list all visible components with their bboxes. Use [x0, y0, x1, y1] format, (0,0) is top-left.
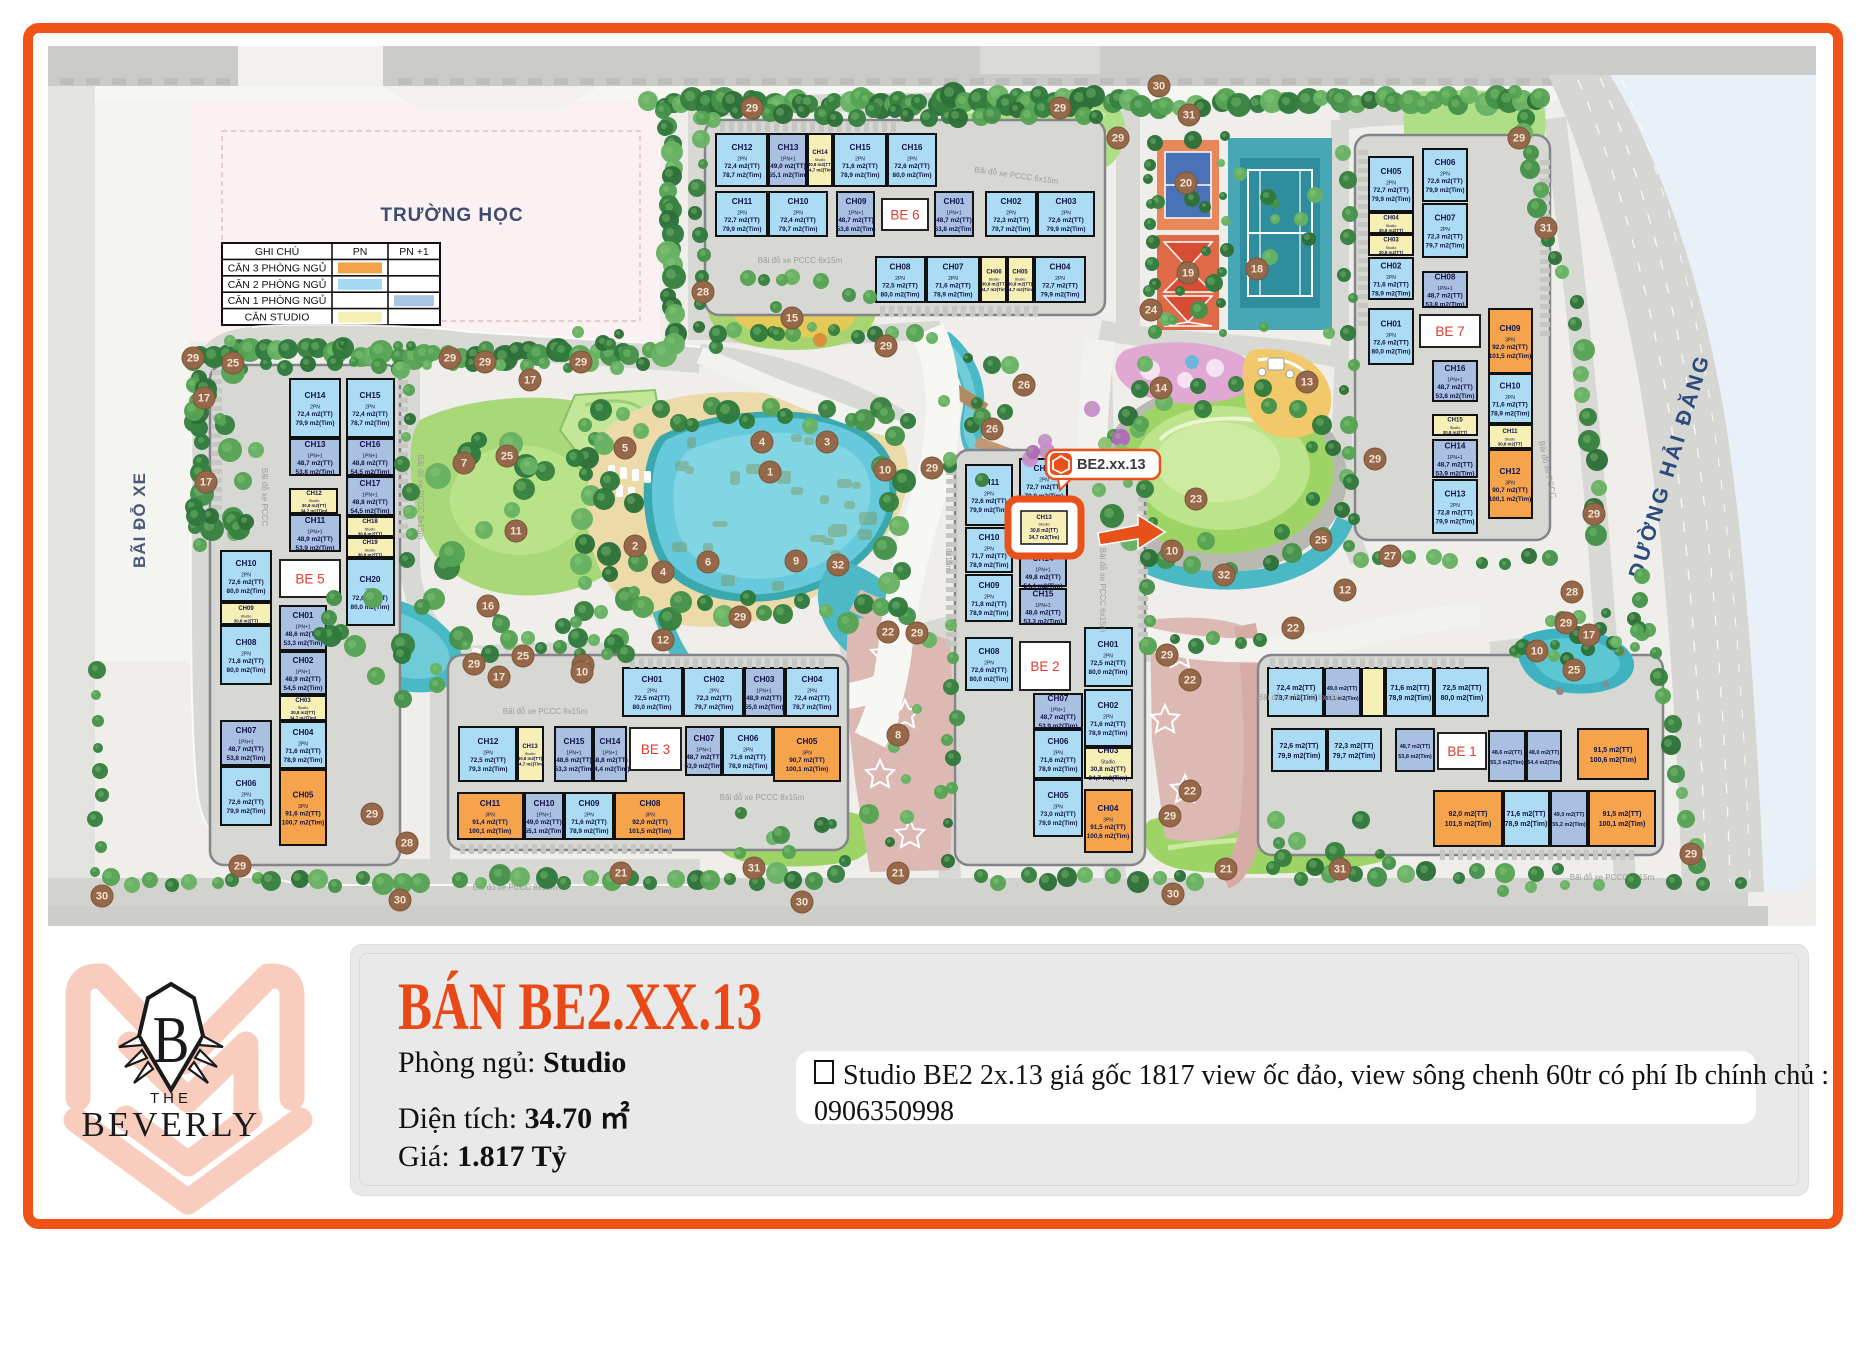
svg-text:CH11: CH11 [732, 197, 753, 206]
svg-text:78,9 m2(Tim): 78,9 m2(Tim) [570, 828, 609, 835]
svg-text:12: 12 [657, 635, 669, 647]
svg-text:28: 28 [401, 838, 413, 850]
svg-text:2PN: 2PN [709, 689, 719, 695]
svg-text:34,7 m2(Tim): 34,7 m2(Tim) [807, 168, 834, 173]
svg-text:CH06: CH06 [1435, 158, 1456, 167]
svg-text:2PN: 2PN [1061, 211, 1071, 217]
svg-text:CH16: CH16 [360, 440, 381, 449]
svg-text:78,9 m2(Tim): 78,9 m2(Tim) [934, 291, 973, 298]
svg-text:78,9 m2(Tim): 78,9 m2(Tim) [1372, 290, 1411, 297]
svg-text:17: 17 [1583, 630, 1595, 642]
svg-text:71,6 m2(TT): 71,6 m2(TT) [1391, 685, 1430, 692]
svg-text:2PN: 2PN [241, 573, 251, 579]
svg-text:1PN+1: 1PN+1 [1437, 286, 1453, 292]
svg-text:29: 29 [1369, 454, 1381, 466]
svg-text:72,6 m2(TT): 72,6 m2(TT) [971, 498, 1007, 505]
svg-text:CH07: CH07 [236, 726, 257, 735]
svg-text:71,6 m2(TT): 71,6 m2(TT) [842, 163, 878, 170]
svg-text:80,0 m2(Tim): 80,0 m2(Tim) [227, 667, 266, 674]
svg-text:90,7 m2(TT): 90,7 m2(TT) [789, 757, 825, 764]
svg-text:92,0 m2(TT): 92,0 m2(TT) [632, 819, 668, 826]
svg-text:48,7 m2(TT): 48,7 m2(TT) [1427, 293, 1463, 300]
svg-text:2PN: 2PN [948, 276, 958, 282]
svg-text:CH06: CH06 [986, 269, 1002, 275]
svg-text:CH02: CH02 [1098, 701, 1119, 710]
svg-text:BE 7: BE 7 [1435, 324, 1464, 339]
svg-text:1PN+1: 1PN+1 [536, 813, 552, 819]
svg-text:29: 29 [911, 628, 923, 640]
svg-text:CH05: CH05 [293, 791, 314, 800]
svg-text:53,8 m2(Tim): 53,8 m2(Tim) [296, 469, 335, 476]
svg-text:49,0 m2(TT): 49,0 m2(TT) [1554, 812, 1585, 818]
svg-text:72,6 m2(TT): 72,6 m2(TT) [228, 579, 264, 586]
svg-text:CH12: CH12 [732, 143, 753, 152]
svg-text:2PN: 2PN [1386, 275, 1396, 281]
svg-text:6: 6 [705, 557, 711, 569]
svg-text:18: 18 [1251, 264, 1263, 276]
svg-text:91,5 m2(TT): 91,5 m2(TT) [1090, 824, 1126, 831]
svg-text:CH11: CH11 [305, 516, 326, 525]
svg-text:55,1 m2(Tim): 55,1 m2(Tim) [525, 828, 564, 835]
svg-text:27: 27 [1384, 551, 1396, 563]
svg-text:14: 14 [1155, 383, 1168, 395]
svg-text:72,6 m2(TT): 72,6 m2(TT) [1280, 743, 1319, 750]
svg-text:BE 2: BE 2 [1030, 659, 1059, 674]
svg-text:71,6 m2(TT): 71,6 m2(TT) [571, 819, 607, 826]
svg-text:30,8 m2(TT): 30,8 m2(TT) [982, 282, 1007, 287]
svg-text:53,8 m2(Tim): 53,8 m2(Tim) [837, 226, 876, 233]
svg-text:30,8 m2(TT): 30,8 m2(TT) [1008, 282, 1033, 287]
svg-text:48,9 m2(TT): 48,9 m2(TT) [297, 536, 333, 543]
svg-text:CH01: CH01 [293, 611, 314, 620]
svg-text:21: 21 [892, 868, 904, 880]
svg-text:BE 5: BE 5 [295, 572, 324, 587]
svg-text:CH01: CH01 [944, 197, 965, 206]
svg-text:Bãi đỗ xe PCCC 8x15m: Bãi đỗ xe PCCC 8x15m [1258, 693, 1343, 702]
svg-text:30,8 m2(TT): 30,8 m2(TT) [1498, 441, 1523, 446]
svg-text:BÃI ĐỖ XE: BÃI ĐỖ XE [129, 472, 149, 568]
svg-text:21: 21 [615, 868, 627, 880]
svg-text:53,8 m2(Tim): 53,8 m2(Tim) [1436, 393, 1475, 400]
svg-text:30,8 m2(TT): 30,8 m2(TT) [1443, 430, 1468, 435]
svg-text:101,5 m2(Tim): 101,5 m2(Tim) [1445, 821, 1492, 828]
svg-text:48,8 m2(TT): 48,8 m2(TT) [352, 460, 388, 467]
svg-text:79,9 m2(Tim): 79,9 m2(Tim) [1436, 518, 1475, 525]
svg-text:101,5 m2(Tim): 101,5 m2(Tim) [1489, 353, 1532, 360]
svg-text:1PN+1: 1PN+1 [307, 530, 323, 536]
svg-text:32: 32 [1218, 570, 1230, 582]
svg-text:CH04: CH04 [293, 728, 314, 737]
svg-text:1PN+1: 1PN+1 [780, 157, 796, 163]
svg-text:CH15: CH15 [564, 737, 585, 746]
svg-text:79,7 m2(Tim): 79,7 m2(Tim) [1333, 753, 1376, 760]
svg-text:78,9 m2(Tim): 78,9 m2(Tim) [1039, 766, 1078, 773]
svg-text:CH05: CH05 [1381, 167, 1402, 176]
svg-text:80,0 m2(Tim): 80,0 m2(Tim) [1089, 669, 1128, 676]
svg-text:30,8 m2(TT): 30,8 m2(TT) [518, 756, 543, 761]
svg-text:54,5 m2(Tim): 54,5 m2(Tim) [351, 508, 390, 515]
svg-text:CH10: CH10 [534, 799, 555, 808]
svg-text:100,1 m2(Tim): 100,1 m2(Tim) [1489, 496, 1532, 503]
svg-text:55,2 m2(Tim): 55,2 m2(Tim) [1552, 822, 1586, 828]
svg-text:CH06: CH06 [738, 734, 759, 743]
svg-text:31: 31 [748, 863, 760, 875]
svg-text:54,5 m2(Tim): 54,5 m2(Tim) [351, 469, 390, 476]
svg-text:71,6 m2(TT): 71,6 m2(TT) [1507, 811, 1546, 818]
svg-text:2PN: 2PN [1039, 478, 1049, 484]
svg-text:34,7 m2(Tim): 34,7 m2(Tim) [1007, 287, 1034, 292]
svg-text:34,7 m2(Tim): 34,7 m2(Tim) [301, 509, 328, 514]
svg-text:30,8 m2(TT): 30,8 m2(TT) [234, 618, 259, 623]
svg-text:71,6 m2(TT): 71,6 m2(TT) [1040, 757, 1076, 764]
svg-text:29: 29 [734, 612, 746, 624]
svg-text:4: 4 [660, 567, 667, 579]
svg-text:72,6 m2(TT): 72,6 m2(TT) [1048, 217, 1084, 224]
svg-text:72,3 m2(TT): 72,3 m2(TT) [1335, 743, 1374, 750]
svg-text:80,0 m2(Tim): 80,0 m2(Tim) [1441, 695, 1484, 702]
svg-text:PN: PN [353, 246, 368, 258]
svg-text:78,9 m2(Tim): 78,9 m2(Tim) [970, 610, 1009, 617]
svg-text:25: 25 [517, 651, 529, 663]
svg-text:78,9 m2(Tim): 78,9 m2(Tim) [1389, 695, 1432, 702]
svg-text:80,0 m2(Tim): 80,0 m2(Tim) [881, 291, 920, 298]
svg-text:CH10: CH10 [788, 197, 809, 206]
svg-text:CĂN 3 PHÒNG NGỦ: CĂN 3 PHÒNG NGỦ [228, 261, 327, 274]
svg-text:CH13: CH13 [522, 744, 538, 750]
svg-text:10: 10 [879, 465, 891, 477]
svg-text:78,7 m2(Tim): 78,7 m2(Tim) [723, 172, 762, 179]
svg-text:TRƯỜNG HỌC: TRƯỜNG HỌC [380, 204, 523, 226]
svg-text:100,6 m2(Tim): 100,6 m2(Tim) [1087, 833, 1130, 840]
svg-text:CH03: CH03 [754, 675, 775, 684]
svg-text:48,7 m2(TT): 48,7 m2(TT) [1400, 744, 1431, 750]
svg-text:79,9 m2(Tim): 79,9 m2(Tim) [1426, 187, 1465, 194]
svg-text:100,1 m2(Tim): 100,1 m2(Tim) [469, 828, 512, 835]
svg-text:30,8 m2(TT): 30,8 m2(TT) [358, 531, 383, 536]
svg-text:48,8 m2(TT): 48,8 m2(TT) [352, 499, 388, 506]
svg-text:101,5 m2(Tim): 101,5 m2(Tim) [629, 828, 672, 835]
svg-text:71,8 m2(TT): 71,8 m2(TT) [228, 658, 264, 665]
svg-text:29: 29 [187, 353, 199, 365]
svg-text:48,9 m2(TT): 48,9 m2(TT) [746, 695, 782, 702]
svg-text:91,5 m2(TT): 91,5 m2(TT) [1603, 811, 1642, 818]
svg-text:8x15m: 8x15m [944, 548, 953, 572]
svg-text:2PN: 2PN [737, 157, 747, 163]
svg-text:55,0 m2(Tim): 55,0 m2(Tim) [745, 704, 784, 711]
svg-text:92,0 m2(TT): 92,0 m2(TT) [1492, 344, 1528, 351]
svg-text:79,9 m2(Tim): 79,9 m2(Tim) [1372, 196, 1411, 203]
svg-text:79,9 m2(Tim): 79,9 m2(Tim) [1039, 820, 1078, 827]
svg-text:53,8 m2(Tim): 53,8 m2(Tim) [935, 226, 974, 233]
svg-text:12: 12 [1339, 585, 1351, 597]
svg-text:1PN+1: 1PN+1 [1050, 708, 1066, 714]
svg-text:CH19: CH19 [362, 540, 378, 546]
svg-text:2PN: 2PN [1386, 333, 1396, 339]
svg-text:29: 29 [234, 861, 246, 873]
svg-text:78,9 m2(Tim): 78,9 m2(Tim) [729, 763, 768, 770]
svg-text:Bãi đỗ xe PCCC: Bãi đỗ xe PCCC [260, 468, 269, 526]
svg-text:34,7 m2(Tim): 34,7 m2(Tim) [981, 287, 1008, 292]
svg-text:53,3 m2(Tim): 53,3 m2(Tim) [284, 640, 323, 647]
svg-text:3PN: 3PN [1103, 818, 1113, 824]
svg-text:55,1 m2(Tim): 55,1 m2(Tim) [769, 172, 808, 179]
svg-text:53,3 m2(Tim): 53,3 m2(Tim) [555, 766, 594, 773]
svg-text:2: 2 [632, 541, 638, 553]
svg-text:GHI CHÚ: GHI CHÚ [255, 245, 299, 258]
svg-text:72,4 m2(TT): 72,4 m2(TT) [297, 411, 333, 418]
svg-text:CĂN 1 PHÒNG NGỦ: CĂN 1 PHÒNG NGỦ [228, 294, 327, 307]
svg-text:71,6 m2(TT): 71,6 m2(TT) [935, 283, 971, 290]
svg-text:26: 26 [1018, 380, 1030, 392]
svg-text:10: 10 [576, 667, 588, 679]
svg-text:79,9 m2(Tim): 79,9 m2(Tim) [296, 420, 335, 427]
svg-text:13: 13 [1301, 377, 1313, 389]
svg-text:79,9 m2(Tim): 79,9 m2(Tim) [1278, 753, 1321, 760]
svg-text:CH14: CH14 [600, 737, 621, 746]
svg-text:CH08: CH08 [236, 638, 257, 647]
svg-text:8: 8 [895, 730, 901, 742]
svg-text:17: 17 [493, 672, 505, 684]
svg-text:22: 22 [1184, 675, 1196, 687]
svg-text:100,6 m2(Tim): 100,6 m2(Tim) [1590, 757, 1637, 764]
svg-text:CH03: CH03 [1056, 197, 1077, 206]
svg-text:72,4 m2(TT): 72,4 m2(TT) [352, 411, 388, 418]
svg-text:34,7 m2(Tim): 34,7 m2(Tim) [517, 762, 544, 767]
svg-text:30,8 m2(TT): 30,8 m2(TT) [1030, 528, 1058, 534]
svg-text:3PN: 3PN [1505, 481, 1515, 487]
svg-text:25: 25 [227, 358, 239, 370]
svg-text:20: 20 [1180, 178, 1192, 190]
svg-text:CH08: CH08 [890, 263, 911, 272]
svg-text:CH06: CH06 [1048, 737, 1069, 746]
svg-text:78,7 m2(Tim): 78,7 m2(Tim) [793, 704, 832, 711]
svg-text:29: 29 [1685, 849, 1697, 861]
svg-text:32: 32 [832, 560, 844, 572]
svg-text:CH10: CH10 [979, 533, 1000, 542]
svg-text:30: 30 [796, 897, 808, 909]
svg-text:CH13: CH13 [305, 440, 326, 449]
svg-text:30: 30 [1167, 889, 1179, 901]
svg-text:54,4 m2(Tim): 54,4 m2(Tim) [1527, 760, 1561, 766]
svg-text:1PN+1: 1PN+1 [1447, 378, 1463, 384]
svg-text:CH15: CH15 [1447, 418, 1463, 424]
svg-text:CH03: CH03 [295, 698, 311, 704]
svg-text:CH10: CH10 [236, 559, 257, 568]
svg-text:3PN: 3PN [802, 751, 812, 757]
svg-text:CH13: CH13 [1445, 490, 1466, 499]
svg-text:53,9 m2(Tim): 53,9 m2(Tim) [1436, 470, 1475, 477]
svg-text:31: 31 [1183, 110, 1195, 122]
svg-text:49,0 m2(TT): 49,0 m2(TT) [526, 819, 562, 826]
svg-text:2PN: 2PN [241, 793, 251, 799]
svg-text:CĂN STUDIO: CĂN STUDIO [245, 311, 310, 324]
svg-text:CH16: CH16 [902, 143, 923, 152]
svg-text:1PN+1: 1PN+1 [848, 211, 864, 217]
svg-text:2PN: 2PN [241, 652, 251, 658]
svg-text:29: 29 [746, 103, 758, 115]
svg-text:79,7 m2(Tim): 79,7 m2(Tim) [779, 226, 818, 233]
svg-text:30: 30 [96, 891, 108, 903]
svg-text:PN +1: PN +1 [399, 246, 429, 258]
svg-text:31: 31 [1540, 223, 1552, 235]
svg-text:2PN: 2PN [1053, 751, 1063, 757]
svg-text:2PN: 2PN [743, 748, 753, 754]
svg-text:48,8 m2(TT): 48,8 m2(TT) [592, 757, 628, 764]
svg-text:CH08: CH08 [979, 647, 1000, 656]
svg-text:CH08: CH08 [1435, 273, 1456, 282]
svg-text:26: 26 [986, 424, 998, 436]
svg-text:1PN+1: 1PN+1 [566, 751, 582, 757]
svg-text:29: 29 [1054, 103, 1066, 115]
svg-text:2PN: 2PN [647, 689, 657, 695]
svg-text:2PN: 2PN [1450, 503, 1460, 509]
svg-text:48,6 m2(TT): 48,6 m2(TT) [1492, 750, 1523, 756]
svg-text:79,9 m2(Tim): 79,9 m2(Tim) [1047, 226, 1086, 233]
svg-text:53,8 m2(Tim): 53,8 m2(Tim) [1426, 301, 1465, 308]
svg-text:10: 10 [1166, 546, 1178, 558]
svg-text:79,9 m2(Tim): 79,9 m2(Tim) [723, 226, 762, 233]
svg-text:1PN+1: 1PN+1 [756, 689, 772, 695]
svg-text:78,9 m2(Tim): 78,9 m2(Tim) [841, 172, 880, 179]
svg-text:CH04: CH04 [1050, 263, 1071, 272]
svg-text:72,6 m2(TT): 72,6 m2(TT) [1373, 340, 1409, 347]
svg-text:53,9 m2(Tim): 53,9 m2(Tim) [685, 763, 724, 770]
svg-text:B: B [153, 1003, 190, 1077]
svg-text:CH10: CH10 [1500, 382, 1521, 391]
svg-text:CH20: CH20 [360, 575, 381, 584]
svg-text:2PN: 2PN [298, 742, 308, 748]
svg-text:CH18: CH18 [362, 519, 378, 525]
svg-text:25: 25 [1568, 665, 1580, 677]
svg-text:2PN: 2PN [584, 813, 594, 819]
svg-text:2PN: 2PN [855, 157, 865, 163]
svg-text:91,6 m2(TT): 91,6 m2(TT) [285, 811, 321, 818]
svg-text:78,9 m2(Tim): 78,9 m2(Tim) [1491, 410, 1530, 417]
svg-text:2PN: 2PN [1440, 172, 1450, 178]
svg-text:72,7 m2(TT): 72,7 m2(TT) [1042, 283, 1078, 290]
svg-text:2PN: 2PN [365, 405, 375, 411]
svg-text:78,9 m2(Tim): 78,9 m2(Tim) [970, 562, 1009, 569]
svg-text:49,8 m2(TT): 49,8 m2(TT) [1025, 574, 1061, 581]
svg-text:72,5 m2(TT): 72,5 m2(TT) [882, 283, 918, 290]
svg-text:CH17: CH17 [360, 479, 381, 488]
svg-text:2PN: 2PN [1505, 395, 1515, 401]
svg-text:9: 9 [793, 556, 799, 568]
svg-text:CH04: CH04 [1383, 216, 1399, 222]
svg-text:1PN+1: 1PN+1 [946, 211, 962, 217]
svg-text:48,7 m2(TT): 48,7 m2(TT) [686, 754, 722, 761]
svg-text:2PN: 2PN [807, 689, 817, 695]
svg-text:2PN: 2PN [310, 405, 320, 411]
svg-text:CH04: CH04 [802, 675, 823, 684]
svg-text:2PN: 2PN [1440, 227, 1450, 233]
svg-text:2PN: 2PN [984, 661, 994, 667]
svg-text:11: 11 [510, 526, 522, 538]
svg-text:72,5 m2(TT): 72,5 m2(TT) [1090, 660, 1126, 667]
svg-text:2PN: 2PN [1055, 276, 1065, 282]
svg-text:10: 10 [1531, 646, 1543, 658]
svg-text:CH14: CH14 [1445, 442, 1466, 451]
svg-text:CH01: CH01 [1381, 320, 1402, 329]
svg-text:CH15: CH15 [360, 391, 381, 400]
svg-text:2PN: 2PN [483, 751, 493, 757]
svg-text:2PN: 2PN [1006, 211, 1016, 217]
svg-text:CH05: CH05 [1012, 269, 1028, 275]
svg-text:79,9 m2(Tim): 79,9 m2(Tim) [227, 808, 266, 815]
svg-text:80,0 m2(Tim): 80,0 m2(Tim) [633, 704, 672, 711]
svg-text:CH09: CH09 [1500, 324, 1521, 333]
svg-text:80,0 m2(Tim): 80,0 m2(Tim) [893, 172, 932, 179]
svg-text:78,9 m2(Tim): 78,9 m2(Tim) [1089, 730, 1128, 737]
svg-text:78,7 m2(Tim): 78,7 m2(Tim) [351, 420, 390, 427]
svg-text:1PN+1: 1PN+1 [602, 751, 618, 757]
svg-text:53,8 m2(Tim): 53,8 m2(Tim) [1398, 754, 1432, 760]
svg-text:48,7 m2(TT): 48,7 m2(TT) [1437, 462, 1473, 469]
svg-text:30,8 m2(TT): 30,8 m2(TT) [1379, 250, 1404, 255]
svg-text:2PN: 2PN [1103, 715, 1113, 721]
svg-text:100,7 m2(Tim): 100,7 m2(Tim) [282, 819, 325, 826]
svg-text:CH02: CH02 [293, 656, 314, 665]
svg-text:30,8 m2(TT): 30,8 m2(TT) [358, 552, 383, 557]
svg-text:79,9 m2(Tim): 79,9 m2(Tim) [1041, 291, 1080, 298]
svg-text:71,6 m2(TT): 71,6 m2(TT) [1373, 282, 1409, 289]
svg-text:3PN: 3PN [1505, 338, 1515, 344]
svg-text:79,9 m2(Tim): 79,9 m2(Tim) [970, 507, 1009, 514]
svg-text:CH09: CH09 [846, 197, 867, 206]
svg-text:25: 25 [1315, 535, 1327, 547]
svg-text:29: 29 [1161, 650, 1173, 662]
svg-text:3PN: 3PN [645, 813, 655, 819]
svg-text:Bãi đỗ xe PCCC 6x15m: Bãi đỗ xe PCCC 6x15m [758, 256, 843, 265]
svg-text:30: 30 [394, 895, 406, 907]
svg-text:22: 22 [882, 627, 894, 639]
svg-text:71,6 m2(TT): 71,6 m2(TT) [1492, 402, 1528, 409]
svg-text:48,7 m2(TT): 48,7 m2(TT) [936, 217, 972, 224]
svg-text:3PN: 3PN [485, 813, 495, 819]
svg-text:72,5 m2(TT): 72,5 m2(TT) [634, 695, 670, 702]
svg-text:72,7 m2(TT): 72,7 m2(TT) [1373, 187, 1409, 194]
svg-text:53,9 m2(Tim): 53,9 m2(Tim) [1039, 723, 1078, 730]
svg-text:29: 29 [468, 659, 480, 671]
svg-text:2PN: 2PN [1103, 654, 1113, 660]
svg-text:29: 29 [575, 357, 587, 369]
svg-text:CH15: CH15 [850, 143, 871, 152]
svg-text:CH03: CH03 [1383, 238, 1399, 244]
svg-text:72,3 m2(TT): 72,3 m2(TT) [1427, 234, 1463, 241]
svg-text:Studio: Studio [1101, 760, 1115, 766]
svg-text:72,3 m2(TT): 72,3 m2(TT) [696, 695, 732, 702]
svg-text:Studio: Studio [1038, 522, 1050, 527]
svg-text:2PN: 2PN [793, 211, 803, 217]
svg-text:CH14: CH14 [305, 391, 326, 400]
svg-text:CH06: CH06 [236, 779, 257, 788]
svg-text:29: 29 [1112, 133, 1124, 145]
svg-text:55,3 m2(Tim): 55,3 m2(Tim) [1490, 760, 1524, 766]
svg-text:30,8 m2(TT): 30,8 m2(TT) [1379, 228, 1404, 233]
svg-text:4: 4 [759, 437, 766, 449]
svg-text:CH03: CH03 [1098, 746, 1119, 755]
svg-text:78,9 m2(Tim): 78,9 m2(Tim) [1505, 821, 1548, 828]
svg-text:2PN: 2PN [984, 547, 994, 553]
svg-text:48,6 m2(TT): 48,6 m2(TT) [1025, 610, 1061, 617]
svg-text:80,0 m2(Tim): 80,0 m2(Tim) [970, 676, 1009, 683]
svg-text:Bãi đỗ xe PCCC 6x15m: Bãi đỗ xe PCCC 6x15m [1098, 548, 1107, 633]
svg-text:3PN: 3PN [298, 804, 308, 810]
svg-text:CH14: CH14 [812, 150, 828, 156]
svg-text:CH05: CH05 [797, 737, 818, 746]
svg-text:80,0 m2(Tim): 80,0 m2(Tim) [1372, 348, 1411, 355]
svg-text:CH09: CH09 [238, 606, 254, 612]
